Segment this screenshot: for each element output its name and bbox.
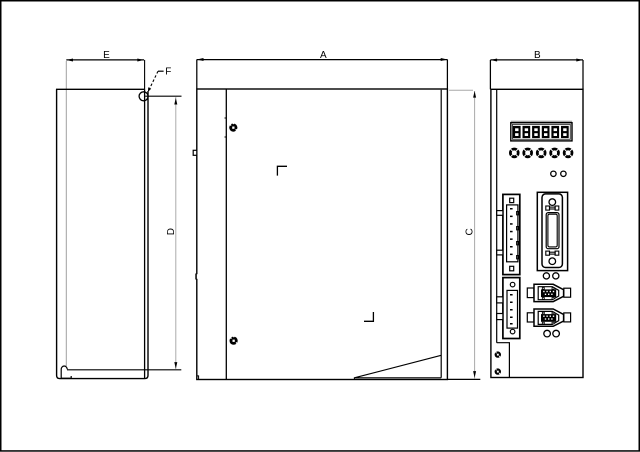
svg-text:B: B [534,50,541,61]
svg-text:C: C [465,228,476,235]
svg-text:A: A [320,50,327,61]
svg-text:F: F [165,67,171,78]
svg-text:D: D [166,228,177,235]
svg-text:E: E [103,50,110,61]
